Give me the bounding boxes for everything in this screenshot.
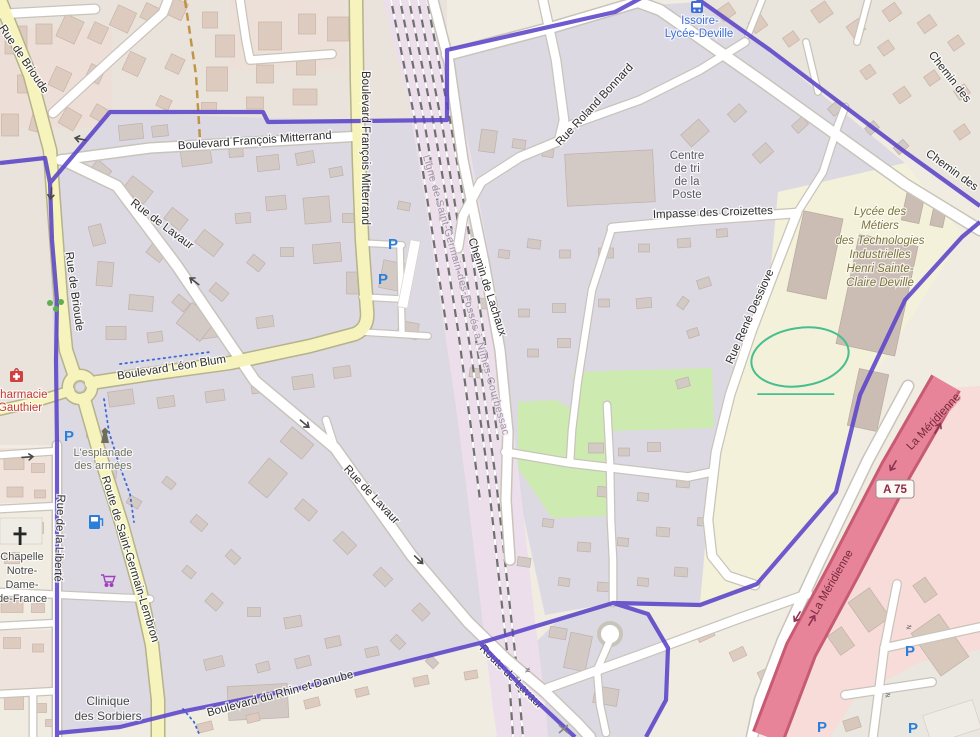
building xyxy=(558,577,570,586)
building xyxy=(656,527,670,537)
building xyxy=(4,638,21,649)
pharmacy-label-line2: Gauthier xyxy=(0,402,42,414)
building xyxy=(577,542,591,552)
building xyxy=(517,557,531,568)
building xyxy=(118,123,143,140)
building xyxy=(512,139,526,150)
parking-icon: P xyxy=(388,236,398,253)
chapel-label-line1: Chapelle xyxy=(0,551,43,563)
school-label-line1: Lycée des xyxy=(854,206,906,218)
building xyxy=(265,195,286,211)
building xyxy=(299,14,316,34)
building xyxy=(553,304,566,313)
parking-icon: P xyxy=(905,643,915,660)
bus-stop-icon xyxy=(691,1,703,13)
chapel-label-line2: Notre- xyxy=(7,565,38,577)
building xyxy=(35,490,46,498)
building xyxy=(36,24,52,44)
post-center-label-line1: Centre xyxy=(670,150,705,162)
parking-icon: P xyxy=(817,719,827,736)
building xyxy=(108,389,135,407)
building xyxy=(519,309,530,317)
post-center-label-line4: Poste xyxy=(672,189,701,201)
building xyxy=(216,35,235,57)
building xyxy=(636,297,652,308)
building xyxy=(2,114,19,136)
school-label-line2: Métiers xyxy=(861,220,899,232)
building xyxy=(312,242,342,263)
building xyxy=(527,239,541,250)
street-label-bd-mitterrand-v: Boulevard François Mitterrand xyxy=(359,71,371,225)
building xyxy=(637,578,649,587)
building xyxy=(256,154,279,171)
building xyxy=(333,365,351,378)
building xyxy=(716,229,728,238)
pharmacy-label-line1: Pharmacie xyxy=(0,389,47,401)
parking-icon: P xyxy=(64,428,74,445)
building xyxy=(560,250,571,258)
building xyxy=(7,487,23,497)
parking-icon: P xyxy=(908,720,918,737)
building xyxy=(32,464,45,473)
motorway-ref-label: A 75 xyxy=(883,484,907,496)
clinic-label-line1: Clinique xyxy=(86,694,130,708)
chapel-label-line3: Dame- xyxy=(5,579,38,591)
building xyxy=(292,374,315,390)
school-label-line5: Henri Sainte- xyxy=(846,263,913,275)
school-label-line3: des Technologies xyxy=(835,235,924,247)
chapel-label-line4: de-France xyxy=(0,593,47,605)
motorway-shield: A 75 xyxy=(876,480,914,498)
building xyxy=(343,214,356,223)
building xyxy=(106,327,126,340)
building xyxy=(147,331,163,343)
building xyxy=(479,129,498,153)
building xyxy=(589,443,604,453)
building xyxy=(96,261,114,286)
post-center-label-line2: de tri xyxy=(674,163,700,175)
building xyxy=(259,22,282,50)
building xyxy=(617,538,629,547)
school-label-line6: Claire Deville xyxy=(846,277,914,289)
building xyxy=(293,89,317,105)
building xyxy=(677,238,691,248)
building xyxy=(205,389,225,403)
building xyxy=(151,125,168,138)
building xyxy=(648,443,661,452)
post-center-label-line3: de la xyxy=(675,176,701,188)
transit-stop-label-line1: Issoire- xyxy=(681,15,719,27)
building xyxy=(33,644,44,652)
clinic-label-line2: des Sorbiers xyxy=(74,709,141,723)
building xyxy=(639,244,650,252)
transit-stop-label-line2: Lycée-Deville xyxy=(665,28,734,40)
building xyxy=(257,65,274,83)
esplanade-label-line1: L'esplanade xyxy=(74,447,133,459)
building xyxy=(235,212,251,223)
school-label-line4: Industrielles xyxy=(849,249,911,261)
parking-icon: P xyxy=(378,271,388,288)
building xyxy=(565,150,656,207)
map-canvas[interactable]: Route de Lavaur Rue de Brioude Rue de Br… xyxy=(0,0,980,737)
building xyxy=(281,248,294,257)
building xyxy=(528,349,539,357)
building xyxy=(599,299,610,307)
building xyxy=(303,196,331,224)
building xyxy=(558,339,571,348)
building xyxy=(542,518,554,527)
building xyxy=(247,97,264,109)
building xyxy=(674,567,688,577)
building xyxy=(619,448,630,456)
building xyxy=(498,249,510,258)
building xyxy=(248,608,261,617)
building xyxy=(128,294,153,311)
building xyxy=(256,315,274,328)
building xyxy=(328,17,349,41)
esplanade-label-line2: des armées xyxy=(74,460,132,472)
building xyxy=(5,697,24,710)
building xyxy=(157,395,175,408)
building xyxy=(207,67,228,91)
building xyxy=(329,166,343,177)
building xyxy=(637,493,649,502)
building xyxy=(203,12,218,28)
